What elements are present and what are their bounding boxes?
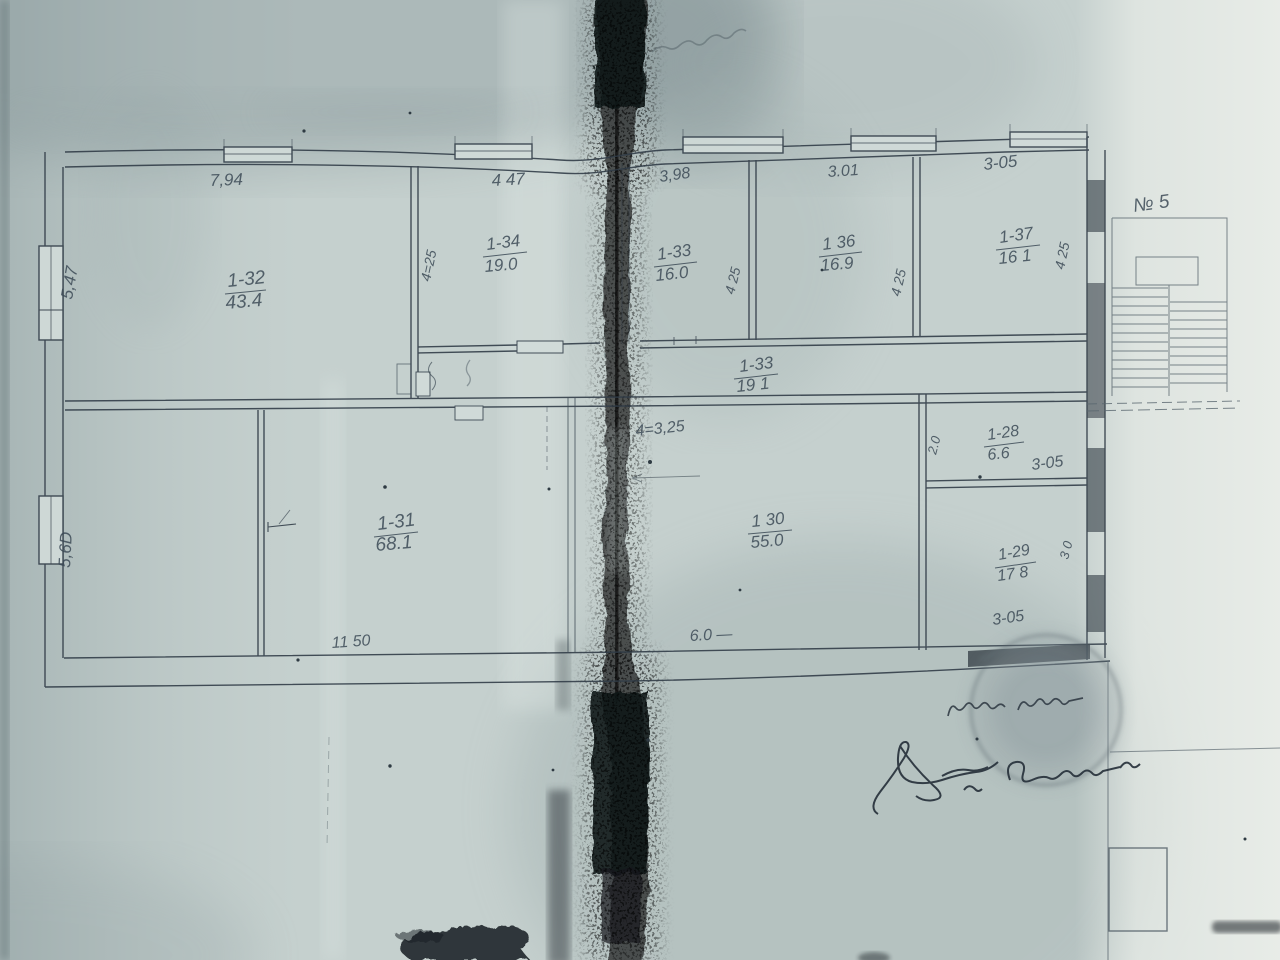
svg-text:1-32: 1-32	[226, 267, 266, 292]
svg-text:7,94: 7,94	[209, 170, 243, 190]
svg-text:19 1: 19 1	[735, 374, 770, 396]
svg-text:4 47: 4 47	[491, 169, 526, 190]
svg-text:16 1: 16 1	[997, 246, 1032, 268]
svg-text:11 50: 11 50	[331, 632, 371, 652]
svg-text:1 30: 1 30	[750, 509, 785, 531]
svg-text:1 36: 1 36	[821, 231, 857, 254]
svg-text:19.0: 19.0	[484, 254, 519, 276]
svg-text:6.0 —: 6.0 —	[689, 626, 734, 645]
svg-text:16.9: 16.9	[820, 253, 855, 275]
svg-text:6.6: 6.6	[987, 445, 1011, 464]
svg-text:68.1: 68.1	[375, 532, 414, 556]
svg-text:55.0: 55.0	[750, 530, 785, 552]
svg-text:16.0: 16.0	[654, 263, 689, 285]
svg-text:3-05: 3-05	[982, 151, 1018, 174]
svg-text:43.4: 43.4	[225, 290, 264, 314]
svg-text:5,6D: 5,6D	[55, 531, 76, 568]
svg-text:3.01: 3.01	[827, 162, 859, 181]
